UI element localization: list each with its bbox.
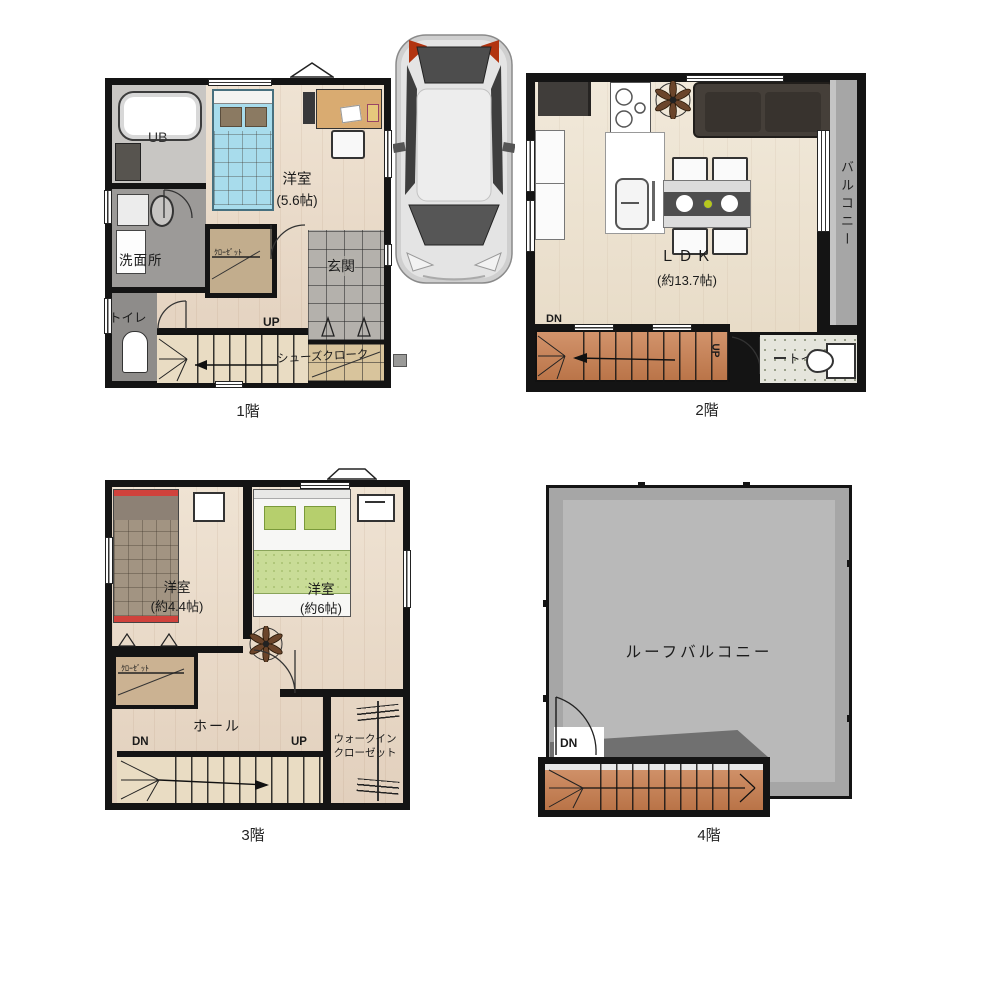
- entrance-label: 玄関: [327, 256, 355, 276]
- stairs-2f: [535, 330, 730, 382]
- window: [403, 550, 411, 608]
- up-1f-label: UP: [263, 315, 280, 329]
- stairs-2f-arrow: [535, 330, 730, 382]
- stairs-4f-arrow: [545, 764, 763, 810]
- washroom-label: 洗面所: [119, 249, 163, 269]
- floor2-tag: 2階: [690, 399, 724, 420]
- closet-1f: ｸﾛｰｾﾞｯﾄ: [205, 224, 277, 298]
- tick-mark: [543, 600, 547, 607]
- kitchen-island: [605, 132, 665, 234]
- bedroom-1f-name: 洋室: [255, 168, 339, 189]
- wic-line1: ウォークイン: [327, 732, 403, 746]
- window: [384, 130, 392, 178]
- window: [104, 298, 112, 334]
- floor4-plan: ルーフバルコニー DN: [538, 480, 856, 820]
- window: [215, 381, 243, 388]
- roof-vent-icon: [327, 468, 377, 481]
- ceiling-fan-icon: [654, 81, 692, 119]
- tick-mark: [847, 715, 851, 722]
- window: [105, 537, 113, 584]
- unit-bath-label: UB: [148, 129, 167, 145]
- floor2-plan: ＬＤＫ (約13.7帖) バルコニー DN UP トイレ: [526, 73, 866, 392]
- up-2f-label: UP: [709, 344, 720, 358]
- window: [208, 79, 272, 86]
- window: [384, 244, 392, 266]
- dining-table: [663, 180, 751, 228]
- dn-3f-label: DN: [132, 736, 149, 748]
- dn-4f-label: DN: [560, 736, 577, 750]
- window: [104, 190, 112, 224]
- cabinet-divider: [536, 183, 564, 184]
- window: [300, 482, 350, 489]
- pillow: [220, 107, 242, 127]
- tick-mark: [543, 695, 547, 702]
- toilet-fixture-1f: [122, 331, 148, 373]
- bed-headboard: [214, 91, 272, 104]
- desk-item: [367, 104, 379, 122]
- room-toilet-2f: トイレ: [760, 335, 857, 383]
- table-line: [365, 501, 385, 503]
- faucet: [652, 181, 655, 221]
- bedroom1-3f-size: (約4.4帖): [133, 596, 221, 615]
- floor1-plan: UB 洗面所 トイレ 洋室 (5.6帖) ｸﾛｰｾﾞｯﾄ: [105, 78, 391, 388]
- green-pillow: [304, 506, 336, 530]
- window: [526, 140, 535, 192]
- sink-divider: [621, 202, 639, 204]
- window: [526, 200, 535, 252]
- dn-2f-label: DN: [546, 313, 562, 325]
- wic-label: ウォークイン クローゼット: [327, 732, 403, 760]
- room-toilet-1f: トイレ: [112, 293, 157, 381]
- sofa-cushion: [705, 92, 761, 132]
- folding-door-marks: [115, 632, 191, 648]
- floor3-plan: 洋室 (約4.4帖) ｸﾛｰｾﾞｯﾄ 洋室 (約6帖): [105, 480, 410, 810]
- roof-vent-icon: [290, 62, 334, 79]
- table-flower: [703, 199, 713, 209]
- wall: [243, 487, 252, 639]
- sofa: [693, 82, 834, 138]
- tick-mark: [743, 482, 750, 486]
- ldk-size-label: (約13.7帖): [632, 270, 742, 289]
- closet-3f-label: ｸﾛｰｾﾞｯﾄ: [121, 663, 149, 674]
- vanity-counter: [117, 194, 149, 226]
- toilet-1f-label: トイレ: [109, 307, 147, 326]
- bath-counter: [115, 143, 141, 181]
- bedroom-1f-size: (5.6帖): [255, 189, 339, 209]
- room-unit-bath: UB: [112, 85, 206, 183]
- stairs-4f-enclosure: [538, 757, 770, 817]
- balcony-label: バルコニー: [837, 160, 856, 250]
- exterior-fixture: [393, 354, 407, 367]
- bedroom1-3f-name: 洋室: [133, 576, 221, 596]
- floor3-tag: 3階: [236, 824, 270, 845]
- bedroom-1f-label: 洋室 (5.6帖): [255, 168, 339, 209]
- room-balcony: バルコニー: [830, 80, 857, 325]
- kitchen-sink: [615, 178, 649, 230]
- kitchen-stove: [610, 82, 651, 134]
- plate: [676, 195, 693, 212]
- bedroom2-3f-name: 洋室: [283, 578, 359, 598]
- desk-chair: [331, 130, 365, 159]
- balcony-edge: [830, 80, 836, 325]
- bedroom1-3f-label: 洋室 (約4.4帖): [133, 576, 221, 615]
- stairs-3f: [117, 757, 323, 803]
- roof-balcony-label: ルーフバルコニー: [599, 640, 799, 662]
- pillow: [245, 107, 267, 127]
- door-arc-bedroom-1f: [270, 224, 306, 260]
- leader-line: [774, 357, 786, 359]
- bed-pillow-zone: [114, 496, 178, 520]
- closet-1f-label: ｸﾛｰｾﾞｯﾄ: [214, 247, 242, 258]
- wall: [280, 689, 403, 697]
- car-top-view: [393, 33, 515, 285]
- tick-mark: [847, 560, 851, 567]
- stairs-3f-arrow: [117, 757, 323, 803]
- window: [686, 75, 784, 82]
- floor1-tag: 1階: [231, 400, 265, 421]
- closet-3f: ｸﾛｰｾﾞｯﾄ: [112, 653, 198, 709]
- kitchen-cabinet: [535, 130, 565, 240]
- refrigerator: [538, 82, 591, 116]
- bed-red-bar: [114, 616, 178, 622]
- door-swing-marks: [314, 316, 378, 338]
- up-3f-label: UP: [291, 736, 307, 748]
- bedroom2-3f-size: (約6帖): [283, 598, 359, 617]
- door-arc-toilet-1f: [157, 300, 187, 330]
- desk: [316, 89, 382, 129]
- side-table: [357, 494, 395, 522]
- bed-headboard: [254, 490, 350, 499]
- paper: [340, 105, 362, 124]
- side-table: [193, 492, 225, 522]
- shelf: [303, 92, 315, 124]
- sofa-cushion: [765, 92, 821, 132]
- wic-line2: クローゼット: [327, 746, 403, 760]
- door-arc-bedroom2: [252, 648, 296, 694]
- hall-label: ホール: [193, 716, 241, 736]
- door-arc-washroom: [163, 189, 193, 219]
- door-arc-toilet-2f: [730, 335, 762, 375]
- green-pillow: [264, 506, 296, 530]
- floor4-tag: 4階: [692, 824, 726, 845]
- room-entrance: 玄関: [308, 230, 384, 340]
- ldk-label: ＬＤＫ: [644, 245, 730, 266]
- floor-plan-page: { "floor1": { "label": "1階", "ub": "UB",…: [0, 0, 1000, 1000]
- bedroom2-3f-label: 洋室 (約6帖): [283, 578, 359, 617]
- balcony-window: [817, 130, 830, 232]
- stove-burners: [611, 83, 650, 133]
- plate: [721, 195, 738, 212]
- stairs-4f: [545, 764, 763, 810]
- tick-mark: [638, 482, 645, 486]
